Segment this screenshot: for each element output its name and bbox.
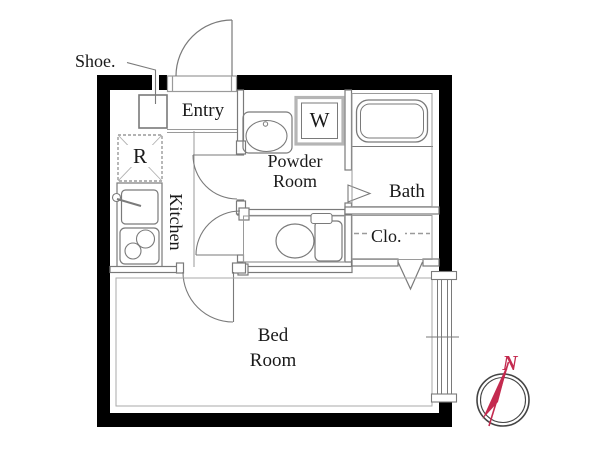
sliding-window xyxy=(426,272,459,403)
toilet-fixtures xyxy=(244,214,345,263)
powder-room-label-line2: Room xyxy=(243,171,347,191)
entry-label: Entry xyxy=(170,100,236,122)
vanity-basin xyxy=(246,121,287,152)
partition-toilet-closet xyxy=(345,215,352,268)
shoe-cabinet-label: Shoe. xyxy=(75,51,116,72)
compass-north-label: N xyxy=(492,351,528,376)
window-cap-bottom xyxy=(432,394,457,402)
refrigerator-label: R xyxy=(127,145,153,167)
bathtub-inner xyxy=(361,104,424,138)
powder-room-label: Powder Room xyxy=(243,151,347,191)
shoe-box xyxy=(139,95,167,128)
partition-bedroom-top-mid xyxy=(233,267,352,273)
toilet-button xyxy=(311,214,332,224)
entry-step xyxy=(167,130,237,133)
partition-bedroom-top-left xyxy=(110,267,183,273)
partition-closet-bottom-left xyxy=(352,259,398,266)
compass-inner-circle xyxy=(481,378,526,423)
toilet-tank xyxy=(315,221,342,261)
bath-door-symbol xyxy=(348,185,370,202)
bedroom-door-swing-arc xyxy=(183,272,233,322)
powder-room-label-line1: Powder xyxy=(243,151,347,171)
wall-top-left-2 xyxy=(159,75,167,90)
bathtub-outer xyxy=(357,100,428,142)
closet-label: Clo. xyxy=(368,226,405,247)
window-cap-top xyxy=(432,272,457,280)
floor-plan: Shoe. Entry R Kitchen W Powder Room Bath… xyxy=(0,0,600,450)
wall-right-upper xyxy=(439,75,452,272)
bath-label: Bath xyxy=(378,181,436,203)
shoe-cabinet xyxy=(127,63,167,129)
toilet-bowl xyxy=(276,224,314,258)
wall-bottom xyxy=(97,413,452,427)
wall-left xyxy=(97,75,110,427)
wall-top-right xyxy=(237,75,452,90)
partition-bath-closet xyxy=(345,207,439,214)
vanity-counter xyxy=(243,112,292,153)
partition-closet-bottom-right xyxy=(423,259,439,266)
bedroom-label-line1: Bed xyxy=(213,324,333,349)
jamb-bedroom-right xyxy=(233,263,246,273)
jamb-bedroom-left xyxy=(177,263,184,273)
bedroom-label-line2: Room xyxy=(213,349,333,374)
wall-right-lower xyxy=(439,400,452,427)
washer-label: W xyxy=(307,108,332,133)
kitchen-label: Kitchen xyxy=(136,182,216,262)
bedroom-label: Bed Room xyxy=(213,324,333,373)
entry-door xyxy=(168,20,237,92)
vanity-faucet-dot xyxy=(263,122,267,126)
closet-folding-door xyxy=(398,262,423,289)
entry-door-swing-arc xyxy=(176,20,232,76)
entry-threshold xyxy=(168,76,237,92)
